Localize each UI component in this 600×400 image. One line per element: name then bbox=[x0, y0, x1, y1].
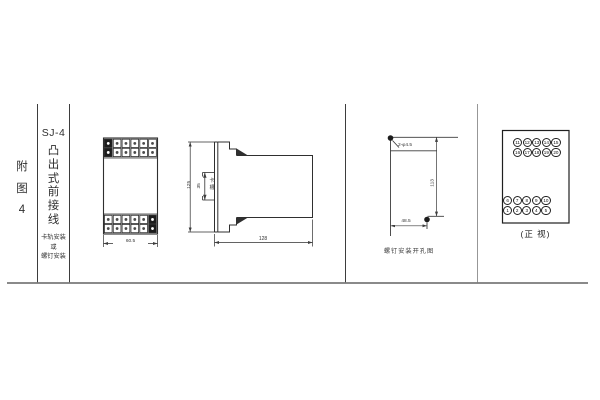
note-line: 卡轨安装 bbox=[41, 233, 66, 243]
vchar: 槽 bbox=[209, 185, 214, 192]
vchar: 凸 bbox=[48, 145, 60, 159]
side-depth-dimension: 128 bbox=[246, 236, 280, 242]
terminal-row-1-5: 12345 bbox=[503, 206, 551, 215]
vchar: 图 bbox=[16, 184, 28, 196]
model-label: SJ-4 bbox=[37, 127, 70, 139]
tcircle: 12 bbox=[523, 138, 532, 147]
tcircle: 5 bbox=[541, 206, 550, 215]
rear-view-caption: (正 视) bbox=[502, 228, 569, 240]
tcircle: 2 bbox=[513, 206, 522, 215]
front-width-dimension: 60.5 bbox=[113, 239, 148, 245]
front-view-drawing bbox=[104, 138, 158, 247]
drill-holes-label: 2-φ4.5 bbox=[398, 143, 428, 149]
drill-horizontal-dimension: 48.5 bbox=[393, 219, 419, 225]
tcircle: 13 bbox=[532, 138, 541, 147]
tcircle: 8 bbox=[522, 196, 531, 205]
vchar: 前 bbox=[48, 186, 60, 200]
figure-number-label: 附图4 bbox=[8, 162, 36, 227]
tcircle: 18 bbox=[532, 148, 541, 157]
vchar: 线 bbox=[48, 214, 60, 228]
vchar: 附 bbox=[16, 162, 28, 174]
slot-dimension: 35 bbox=[197, 174, 203, 196]
tcircle: 9 bbox=[532, 196, 541, 205]
tcircle: 11 bbox=[513, 138, 522, 147]
drill-view-caption: 螺钉安装开孔图 bbox=[373, 246, 445, 255]
vchar: 出 bbox=[48, 159, 60, 173]
terminal-row-11-15: 1112131415 bbox=[513, 138, 561, 147]
side-height-dimension: 125 bbox=[187, 171, 193, 199]
side-view-drawing bbox=[188, 142, 313, 247]
terminal-row-6-10: 678910 bbox=[503, 196, 551, 205]
drawing-sheet: 附图4 SJ-4 凸出式前接线 卡轨安装或螺钉安装 60.5 125 35 卡槽… bbox=[0, 0, 600, 400]
note-line: 螺钉安装 bbox=[41, 252, 66, 262]
tcircle: 19 bbox=[542, 148, 551, 157]
mounting-note: 卡轨安装或螺钉安装 bbox=[37, 233, 70, 262]
tcircle: 1 bbox=[503, 206, 512, 215]
tcircle: 16 bbox=[513, 148, 522, 157]
tcircle: 10 bbox=[541, 196, 550, 205]
vchar: 式 bbox=[48, 173, 60, 187]
note-line: 或 bbox=[50, 243, 56, 253]
tcircle: 4 bbox=[532, 206, 541, 215]
tcircle: 14 bbox=[542, 138, 551, 147]
tcircle: 15 bbox=[551, 138, 560, 147]
vchar: 接 bbox=[48, 200, 60, 214]
terminal-screws bbox=[104, 139, 156, 233]
tcircle: 17 bbox=[523, 148, 532, 157]
tcircle: 20 bbox=[551, 148, 560, 157]
slot-label: 卡槽 bbox=[208, 178, 217, 191]
drill-vertical-dimension: 113 bbox=[431, 169, 437, 196]
sheet-frame bbox=[7, 104, 588, 283]
tcircle: 7 bbox=[513, 196, 522, 205]
terminal-row-16-20: 1617181920 bbox=[513, 148, 561, 157]
tcircle: 3 bbox=[522, 206, 531, 215]
vchar: 4 bbox=[19, 205, 25, 217]
tcircle: 6 bbox=[503, 196, 512, 205]
product-type-label: 凸出式前接线 bbox=[37, 145, 70, 228]
